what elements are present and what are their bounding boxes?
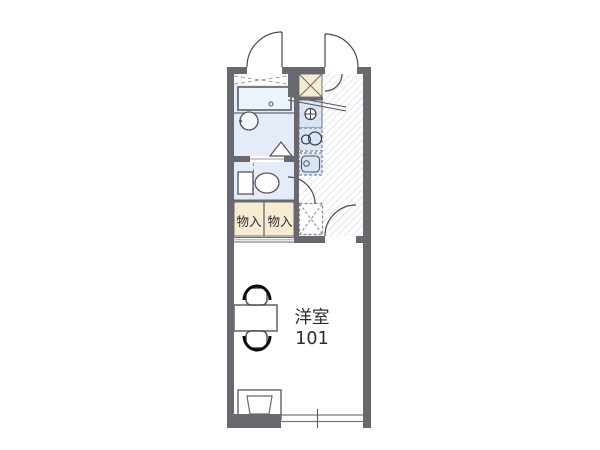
wall-top: [282, 67, 325, 74]
wall-left: [227, 67, 234, 428]
wall-bath: [284, 156, 294, 162]
window-bottom: [281, 409, 363, 428]
wall-stub: [288, 74, 294, 97]
wall-toilet-storage: [234, 200, 294, 203]
toilet-tank: [238, 172, 253, 194]
shoe-box: [299, 74, 322, 97]
wall-under-shoebox: [294, 97, 323, 100]
bathroom: [234, 76, 294, 156]
table: [234, 305, 277, 331]
wall-bottom: [227, 414, 281, 428]
wall-bath: [234, 156, 250, 162]
bathtub: [238, 87, 291, 110]
kitchen-unit: [299, 100, 322, 175]
toilet-room: [234, 162, 294, 200]
furniture: [234, 286, 281, 419]
wash-basin: [240, 112, 258, 130]
room-name-label: 洋室: [295, 308, 330, 328]
wall-right: [363, 67, 371, 428]
wall-room-top: [356, 236, 363, 243]
storage-label-right: 物入: [267, 214, 293, 229]
entrance-door-swing-arc: [325, 34, 358, 67]
tv-icon: [247, 396, 272, 414]
wall-room-top: [296, 236, 325, 243]
storage-label-left: 物入: [236, 214, 262, 229]
floor-plan-drawing: 物入 物入 洋室 101: [0, 0, 600, 450]
floor-plan: 物入 物入 洋室 101: [0, 0, 600, 450]
basin-faucet-icon: [239, 120, 242, 123]
room-number-label: 101: [295, 329, 328, 349]
refrigerator-space: [300, 204, 323, 235]
toilet-bowl: [255, 173, 279, 193]
utility-door-swing-arc: [247, 32, 282, 67]
